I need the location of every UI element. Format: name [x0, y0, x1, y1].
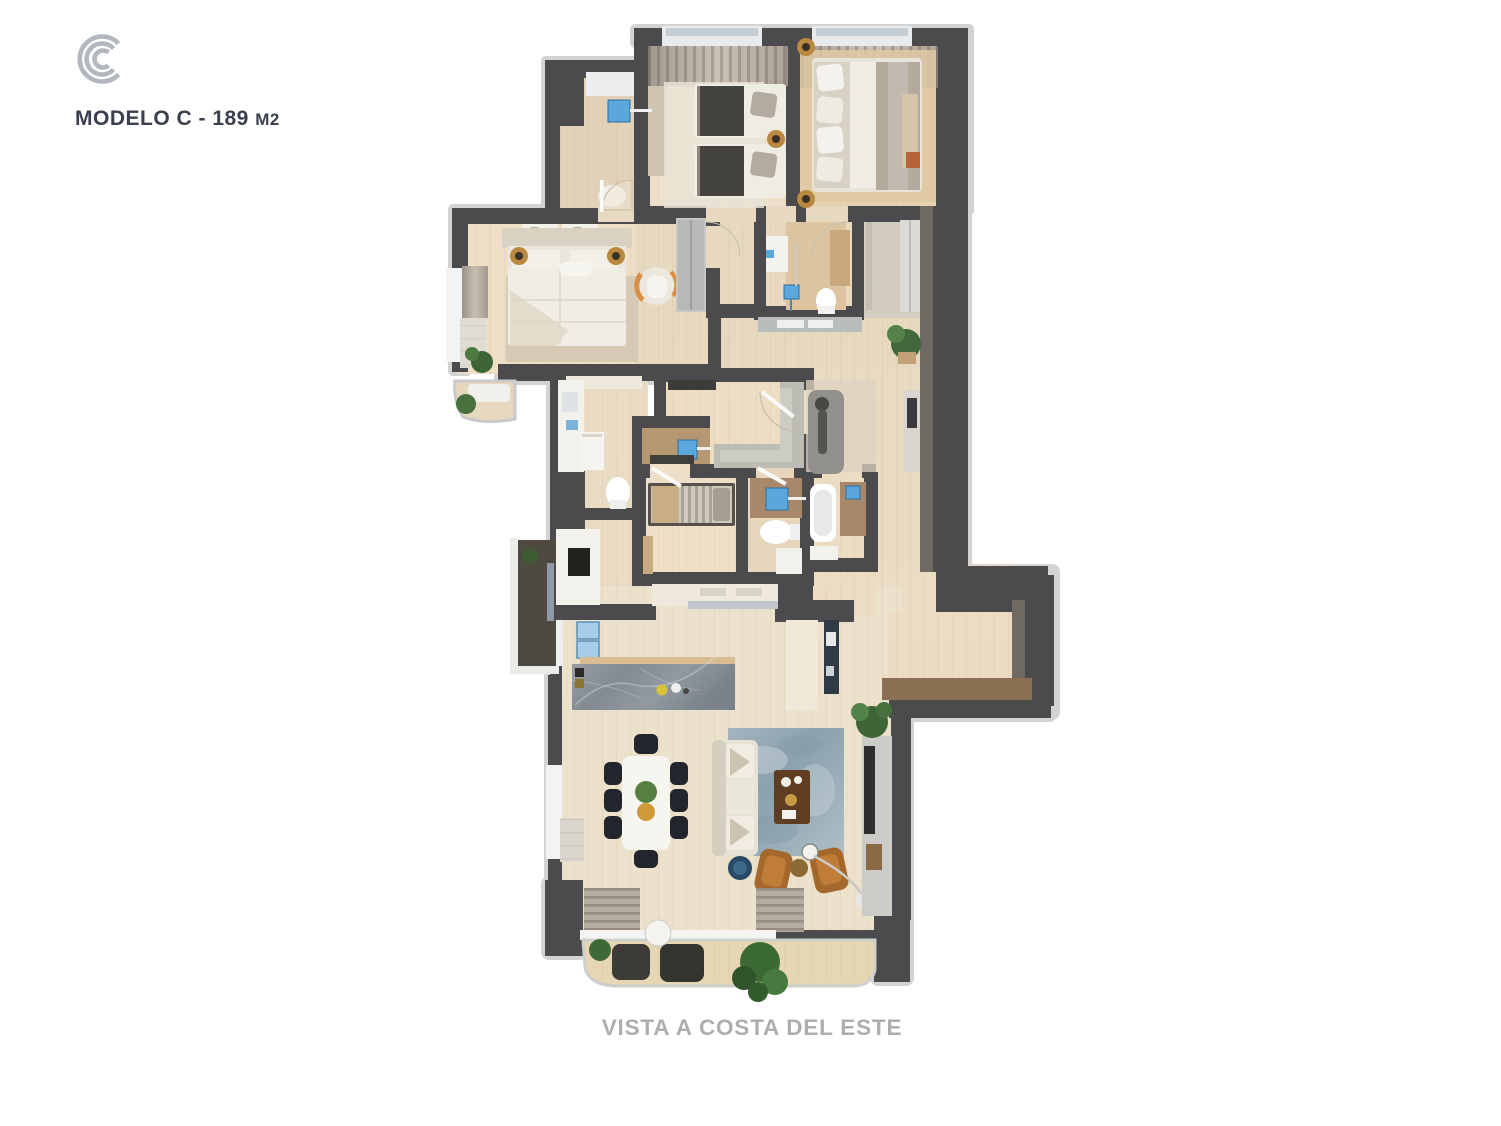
svg-text:VISTA A COSTA DEL ESTE: VISTA A COSTA DEL ESTE	[602, 1015, 903, 1040]
svg-text:MODELO C - 189 M2: MODELO C - 189 M2	[75, 107, 280, 130]
